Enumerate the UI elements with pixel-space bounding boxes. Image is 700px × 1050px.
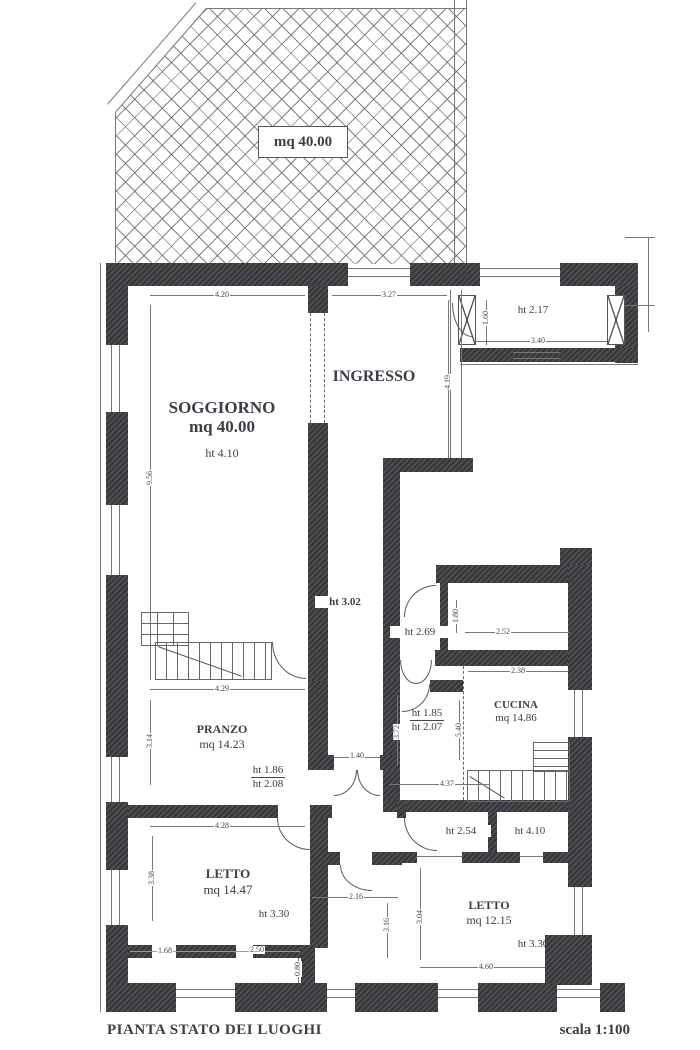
- window: [574, 887, 575, 935]
- terrace-border-left: [115, 112, 116, 264]
- dim-wc-width: 2.52: [495, 628, 511, 636]
- wall-segment: [395, 852, 417, 863]
- cucina-area: mq 14.86: [476, 712, 556, 725]
- dim-mid-width: 2.16: [348, 893, 364, 901]
- window: [111, 505, 112, 575]
- window: [348, 268, 410, 269]
- room-label-corridoio: ht 3.02: [315, 596, 375, 608]
- bagno-height-upper: ht 1.85: [410, 707, 445, 721]
- window: [513, 352, 560, 353]
- door-arc: [357, 770, 380, 796]
- room-label-veranda: ht 2.17: [503, 304, 563, 316]
- wall-segment: [462, 852, 520, 863]
- room-label-wc: ht 2.69: [390, 626, 450, 638]
- cucina-name: CUCINA: [476, 699, 556, 712]
- letto-sx-height-label: ht 3.30: [244, 908, 304, 920]
- dim-segment-c: 0.80: [294, 961, 302, 977]
- window: [111, 870, 112, 925]
- window: [176, 989, 235, 990]
- wall-segment: [310, 852, 340, 865]
- dim-letto-dx-height: 3.04: [416, 909, 424, 925]
- window: [582, 690, 583, 737]
- dim-letto-sx-width: 4.28: [214, 822, 230, 830]
- door-arc: [400, 660, 416, 684]
- open-passage-dashed: [310, 313, 311, 423]
- wall-segment: [308, 286, 328, 313]
- window: [574, 690, 575, 737]
- wall-segment: [355, 983, 438, 1012]
- room-label-cucina: CUCINA mq 14.86: [476, 699, 556, 725]
- wall-segment: [106, 412, 128, 505]
- letto-dx-area: mq 12.15: [449, 913, 529, 928]
- window: [557, 997, 600, 998]
- window: [119, 345, 120, 412]
- wall-segment: [543, 852, 570, 863]
- dim-line: [465, 632, 570, 633]
- wall-segment: [310, 805, 332, 818]
- window: [327, 989, 355, 990]
- soggiorno-name: SOGGIORNO: [142, 398, 302, 417]
- window: [348, 276, 410, 277]
- corridoio-height: ht 3.02: [329, 596, 361, 608]
- wall-segment: [410, 263, 466, 286]
- terrace-border-right: [466, 0, 467, 264]
- dim-segment-a: 1.68: [157, 947, 173, 955]
- window: [119, 757, 120, 802]
- window: [582, 887, 583, 935]
- wall-segment: [568, 565, 592, 690]
- stairs-cucina-upper: [533, 742, 570, 772]
- dim-veranda-height: 1.60: [482, 310, 490, 326]
- wall-segment: [478, 983, 557, 1012]
- dim-mid-height: 3.16: [383, 917, 391, 933]
- pranzo-height-upper: ht 1.86: [251, 764, 286, 778]
- partition-dashed: [463, 666, 464, 800]
- window: [119, 505, 120, 575]
- dim-cucina-height: 5.40: [455, 722, 463, 738]
- dim-segment-b: 2.50: [249, 946, 265, 954]
- dim-bagno-height: 3.72: [393, 724, 401, 740]
- wall-segment: [308, 755, 334, 770]
- letto-dx-height: ht 3.30: [518, 938, 549, 950]
- terrace-area-label: mq 40.00: [274, 134, 332, 150]
- plan-title: PIANTA STATO DEI LUOGHI: [107, 1022, 407, 1039]
- dim-letto-sx-height: 3.38: [148, 870, 156, 886]
- wall-segment: [310, 818, 328, 948]
- door-arc: [404, 585, 436, 617]
- letto-sx-name: LETTO: [183, 866, 273, 882]
- dim-line: [130, 951, 300, 952]
- room-label-pranzo-heights: ht 1.86 ht 2.08: [243, 764, 293, 791]
- wall-segment: [600, 983, 625, 1012]
- room-label-bagno: ht 1.85 ht 2.07: [402, 707, 452, 734]
- dim-line: [150, 305, 151, 680]
- dim-pranzo-width: 4.29: [214, 685, 230, 693]
- soggiorno-area: mq 40.00: [142, 417, 302, 436]
- wall-segment: [235, 983, 327, 1012]
- pranzo-height-lower: ht 2.08: [253, 778, 284, 790]
- window: [176, 997, 235, 998]
- wall-segment: [560, 263, 638, 286]
- terrace-border-top: [206, 8, 467, 9]
- room-label-vano-dx: ht 4.10: [500, 825, 560, 837]
- window: [111, 757, 112, 802]
- dim-hall-door-width: 1.40: [349, 752, 365, 760]
- disimpegno-height: ht 2.54: [446, 825, 477, 837]
- letto-sx-area: mq 14.47: [183, 882, 273, 898]
- plan-scale-text: scala 1:100: [560, 1022, 630, 1038]
- dim-ingresso-height: 4.19: [444, 374, 452, 390]
- terrace-area-box: mq 40.00: [258, 126, 348, 158]
- wall-segment: [383, 458, 400, 680]
- wall-segment: [308, 423, 328, 681]
- extension-line: [625, 237, 655, 238]
- veranda-height: ht 2.17: [518, 304, 549, 316]
- wall-segment: [435, 650, 568, 666]
- window: [513, 358, 560, 359]
- window: [480, 276, 560, 277]
- opening-line: [520, 856, 543, 857]
- wall-segment: [301, 945, 315, 985]
- plan-scale: scala 1:100: [470, 1022, 630, 1039]
- window: [119, 870, 120, 925]
- wall-segment: [460, 348, 638, 362]
- dim-veranda-width: 3.40: [530, 337, 546, 345]
- window: [327, 997, 355, 998]
- soggiorno-height: ht 4.10: [142, 446, 302, 461]
- wall-segment: [568, 737, 592, 887]
- door-arc: [452, 303, 472, 337]
- pillar-cross: [607, 295, 625, 345]
- wall-segment: [430, 680, 463, 692]
- window: [111, 345, 112, 412]
- room-label-letto-dx: LETTO mq 12.15: [449, 898, 529, 928]
- wall-segment: [106, 575, 128, 757]
- room-label-ingresso: INGRESSO: [314, 368, 434, 386]
- door-arc: [277, 818, 310, 850]
- wall-segment: [308, 681, 328, 757]
- wall-segment: [128, 805, 278, 818]
- terrace-line-right-outer: [454, 0, 455, 264]
- room-label-soggiorno: SOGGIORNO mq 40.00 ht 4.10: [142, 398, 302, 461]
- floor-plan: mq 40.00: [0, 0, 700, 1050]
- window: [557, 989, 600, 990]
- dim-wc-height: 1.80: [452, 608, 460, 624]
- room-label-disimpegno: ht 2.54: [431, 825, 491, 837]
- window: [480, 268, 560, 269]
- wall-segment: [106, 983, 176, 1012]
- window: [438, 997, 478, 998]
- extension-line: [648, 237, 649, 332]
- door-arc: [272, 642, 306, 679]
- veranda-underline: [460, 364, 638, 365]
- dim-cucina-width: 2.38: [510, 667, 526, 675]
- bagno-height-lower: ht 2.07: [412, 721, 443, 733]
- window: [438, 989, 478, 990]
- wall-segment: [106, 802, 128, 870]
- dim-ingresso-width: 3.27: [381, 291, 397, 299]
- dim-bagno-width: 4.37: [439, 780, 455, 788]
- outer-offset-line-left: [100, 263, 101, 1012]
- room-label-letto-sx: LETTO mq 14.47: [183, 866, 273, 898]
- wall-segment: [397, 800, 406, 818]
- room-label-pranzo: PRANZO mq 14.23: [177, 722, 267, 752]
- wall-segment: [106, 263, 348, 286]
- ingresso-name: INGRESSO: [333, 368, 416, 385]
- dim-soggiorno-width: 4.20: [214, 291, 230, 299]
- dim-letto-dx-width: 4.60: [478, 963, 494, 971]
- door-arc: [334, 770, 357, 796]
- wall-segment: [106, 263, 128, 345]
- plan-title-text: PIANTA STATO DEI LUOGHI: [107, 1022, 322, 1038]
- door-arc: [340, 865, 372, 891]
- dim-soggiorno-height: 9.56: [146, 470, 154, 486]
- extension-line: [625, 305, 655, 306]
- letto-sx-height: ht 3.30: [259, 908, 290, 920]
- wc-height: ht 2.69: [405, 626, 436, 638]
- letto-dx-height-label: ht 3.30: [503, 938, 563, 950]
- wall-segment: [466, 263, 480, 286]
- dim-pranzo-height: 3.14: [146, 733, 154, 749]
- opening-line: [417, 856, 462, 857]
- pranzo-area: mq 14.23: [177, 737, 267, 752]
- pranzo-name: PRANZO: [177, 722, 267, 737]
- vano-dx-height: ht 4.10: [515, 825, 546, 837]
- stairs-soggiorno-upper: [141, 612, 189, 646]
- letto-dx-name: LETTO: [449, 898, 529, 913]
- stairs-soggiorno-flight: [155, 642, 272, 680]
- stairs-cucina-flight: [467, 770, 570, 802]
